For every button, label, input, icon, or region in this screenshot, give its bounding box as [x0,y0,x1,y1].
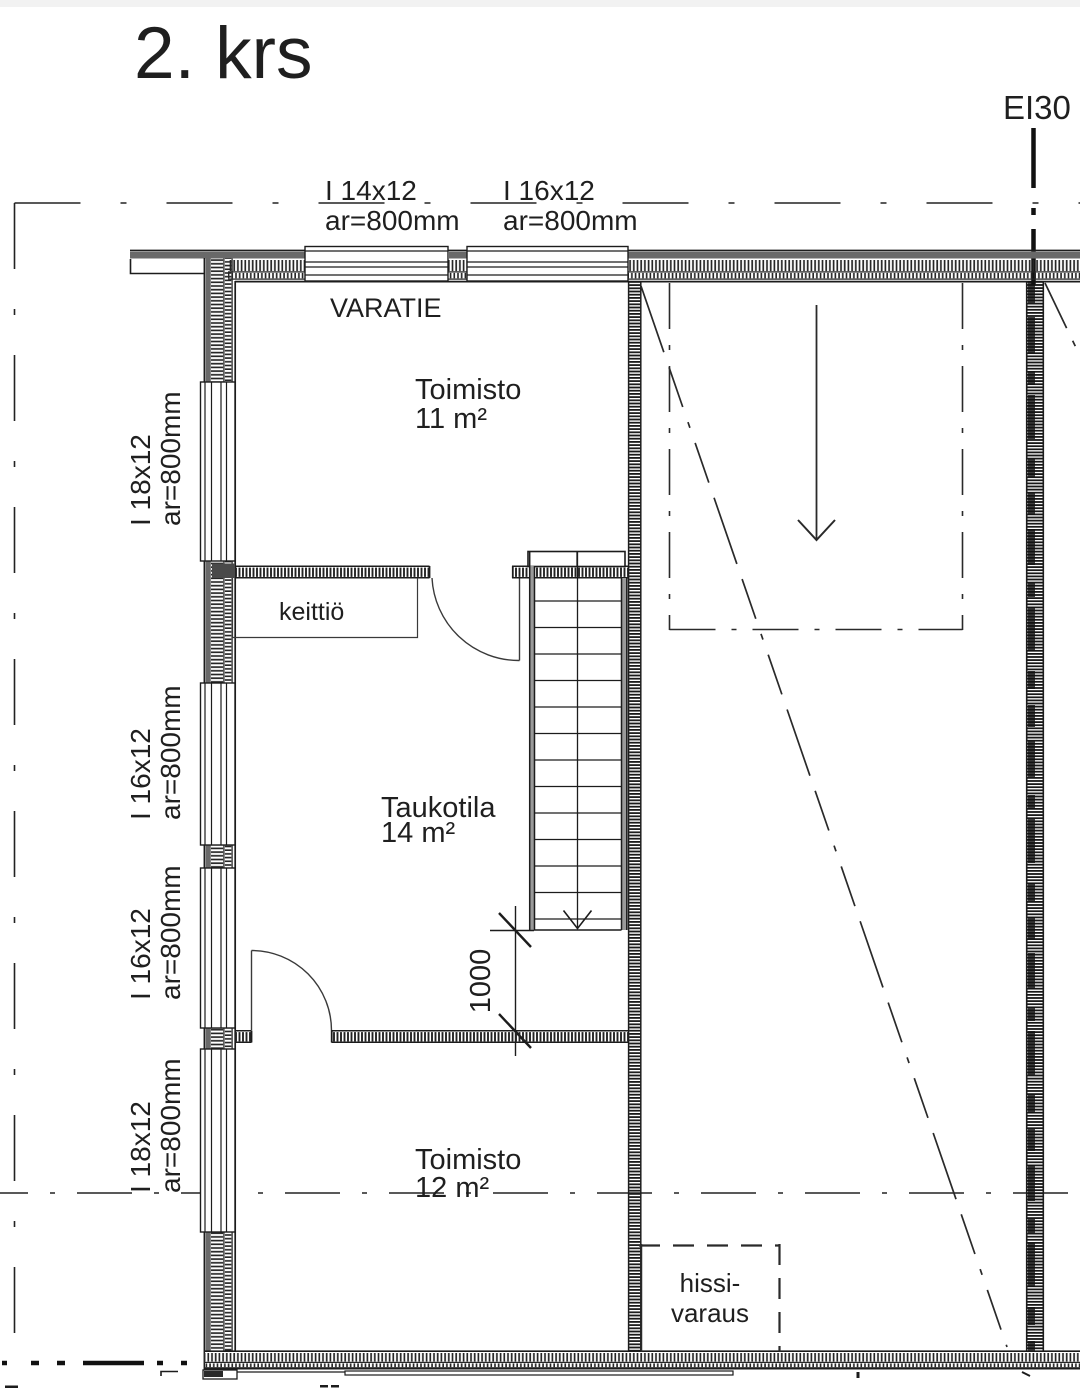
svg-text:I 16x12: I 16x12 [125,728,156,820]
svg-text:keittiö: keittiö [279,598,344,626]
svg-text:Toimisto: Toimisto [415,374,521,406]
svg-text:EI30: EI30 [1003,89,1071,126]
svg-text:ar=800mm: ar=800mm [155,391,186,526]
svg-text:ar=800mm: ar=800mm [503,205,638,236]
svg-text:I 18x12: I 18x12 [125,1101,156,1193]
svg-text:2. krs: 2. krs [134,13,312,94]
svg-text:I 16x12: I 16x12 [125,908,156,1000]
svg-text:ar=800mm: ar=800mm [155,685,186,820]
svg-text:I 18x12: I 18x12 [125,434,156,526]
svg-text:VARATIE: VARATIE [330,293,442,323]
svg-text:ar=800mm: ar=800mm [155,865,186,1000]
svg-text:I 14x12: I 14x12 [325,175,417,206]
svg-text:ar=800mm: ar=800mm [155,1058,186,1193]
svg-text:I 16x12: I 16x12 [503,175,595,206]
svg-text:1000: 1000 [465,949,497,1014]
svg-text:12 m²: 12 m² [415,1172,489,1204]
svg-text:varaus: varaus [671,1298,749,1328]
svg-text:14 m²: 14 m² [381,817,455,849]
svg-text:ar=800mm: ar=800mm [325,205,460,236]
svg-text:11 m²: 11 m² [415,403,487,435]
svg-text:hissi-: hissi- [680,1268,741,1298]
